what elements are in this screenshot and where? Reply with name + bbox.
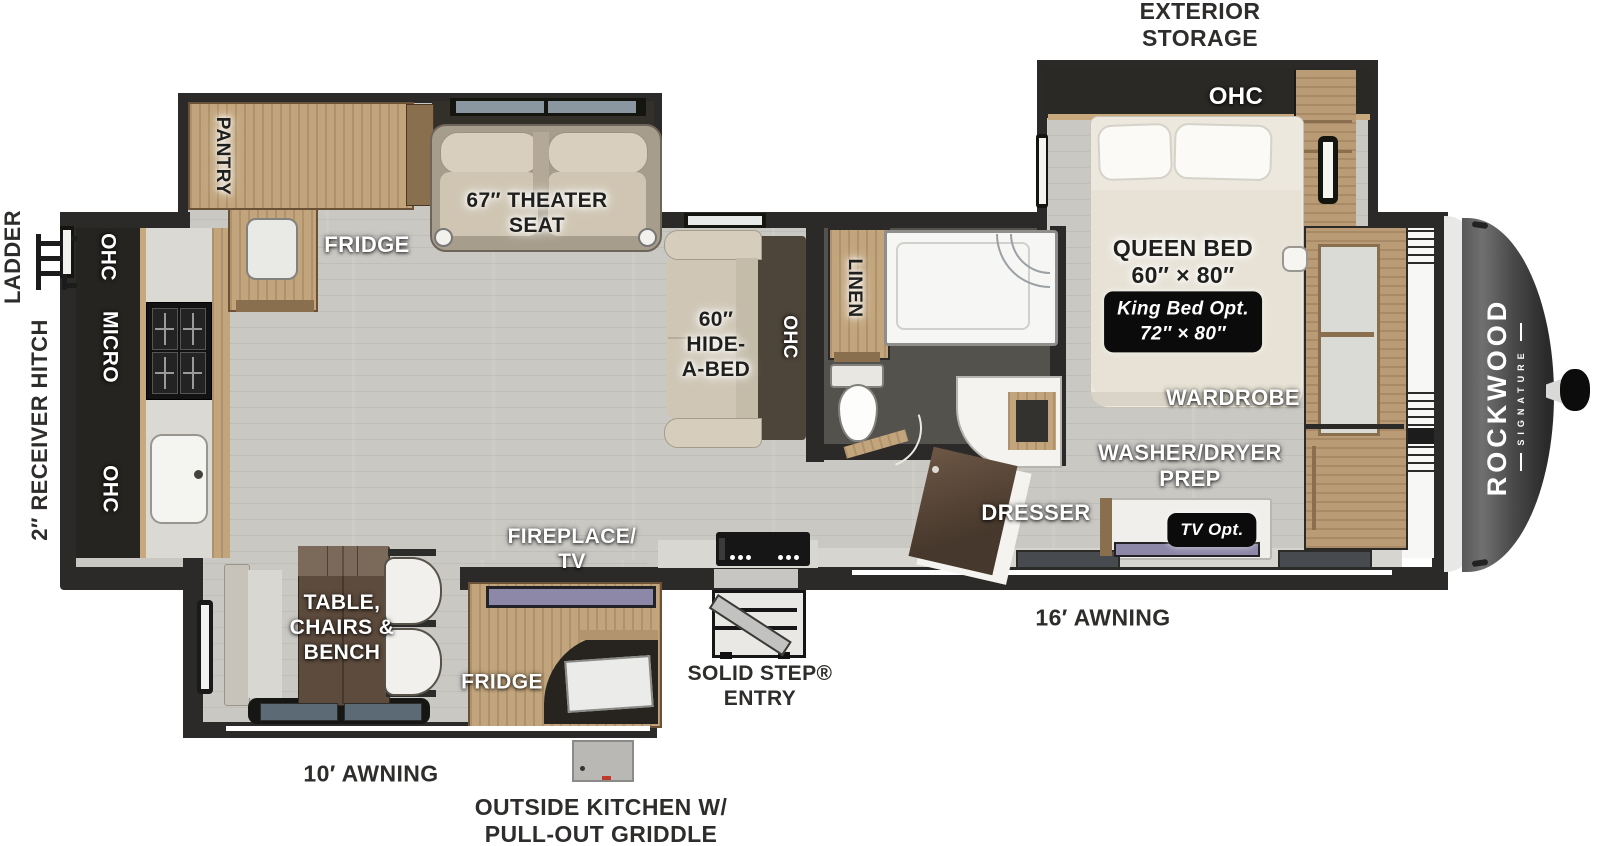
wardrobe-divider xyxy=(1304,424,1404,429)
stove-grate-3 xyxy=(152,352,178,394)
ladder-label: LADDER xyxy=(0,210,26,304)
outside-kitchen-shelf-bar xyxy=(578,630,658,640)
step-foot-1 xyxy=(720,652,732,659)
ohc-kitchen-bottom-label: OHC xyxy=(97,465,122,513)
hitch-icon xyxy=(1560,369,1590,411)
washer-dryer-prep-label: WASHER/DRYER PREP xyxy=(1098,440,1282,492)
rockwood-logo: ROCKWOOD SIGNATURE xyxy=(1464,267,1544,527)
receiver-hitch-label: 2″ RECEIVER HITCH xyxy=(27,319,53,540)
micro-label: MICRO xyxy=(97,311,122,383)
entry-door-threshold xyxy=(714,569,798,588)
brand-sub: SIGNATURE xyxy=(1516,316,1526,477)
vanity-sink xyxy=(1016,400,1048,442)
ohc-bedroom-label: OHC xyxy=(1209,83,1264,111)
griddle-icon xyxy=(716,532,810,566)
pullout-griddle-latch xyxy=(602,776,611,780)
fridge-main-label: FRIDGE xyxy=(324,232,410,258)
griddle-handle xyxy=(719,538,725,560)
corner-cabinet-inset xyxy=(246,218,298,280)
linen-shelf xyxy=(834,352,880,362)
ladder-arm2 xyxy=(65,283,77,288)
awning-16-rail xyxy=(852,570,1392,575)
bench-seat xyxy=(248,570,282,698)
solid-step-entry-label: SOLID STEP® ENTRY xyxy=(688,662,833,712)
bedroom-window-right-glass xyxy=(1323,142,1333,198)
wardrobe-label: WARDROBE xyxy=(1166,385,1300,411)
griddle-dot2 xyxy=(738,555,743,560)
theater-slideout-wall-left xyxy=(178,93,188,232)
nightstand-lamp xyxy=(1282,246,1308,272)
stove-grate-1 xyxy=(152,308,178,350)
corner-cabinet-shelf xyxy=(236,300,314,312)
floor-mat-panel1 xyxy=(260,703,338,721)
griddle-dot4 xyxy=(778,555,783,560)
sofa-window-glass xyxy=(688,216,762,225)
tv-cabinet-wood-end xyxy=(1100,498,1112,556)
bed-pillow-right xyxy=(1173,123,1272,182)
ohc-kitchen-top-label: OHC xyxy=(95,233,120,281)
theater-seat-back1 xyxy=(440,132,540,174)
hide-a-bed-label: 60″ HIDE- A-BED xyxy=(682,308,751,382)
linen-label: LINEN xyxy=(843,259,865,318)
pantry-label: PANTRY xyxy=(211,117,233,195)
theater-seat-label: 67″ THEATER SEAT xyxy=(466,189,607,239)
exterior-storage-label: EXTERIOR STORAGE xyxy=(1140,0,1261,52)
dinette-window-glass xyxy=(201,605,209,689)
rear-window-glass xyxy=(63,230,71,274)
fireplace-tv-screen xyxy=(486,586,656,608)
fridge-outside-label: FRIDGE xyxy=(461,671,543,696)
wardrobe-mirror xyxy=(1318,244,1380,436)
theater-window-pane1 xyxy=(456,101,544,113)
pullout-shelf xyxy=(564,655,653,713)
wardrobe-mirror-bar xyxy=(1320,332,1374,337)
sofa-armrest-bottom xyxy=(664,418,762,448)
theater-seat-back2 xyxy=(548,132,648,174)
bench xyxy=(224,564,250,706)
ohc-sofa-label: OHC xyxy=(778,315,800,358)
dresser-label: DRESSER xyxy=(981,500,1090,526)
theater-cupholder-left xyxy=(434,228,453,247)
queen-bed-label: QUEEN BED 60″ × 80″ xyxy=(1113,235,1253,289)
bedroom-column-shelf1 xyxy=(1296,120,1352,123)
bottom-window-2 xyxy=(1278,550,1372,569)
stove-grate-2 xyxy=(180,308,206,350)
wall-top-rear xyxy=(60,212,190,228)
floor-mat-panel2 xyxy=(344,703,422,721)
griddle-dot1 xyxy=(730,555,735,560)
bedroom-window-left-glass xyxy=(1039,138,1046,204)
brand-name: ROCKWOOD xyxy=(1482,298,1513,496)
table-chairs-bench-label: TABLE, CHAIRS & BENCH xyxy=(290,591,395,665)
awning-16-label: 16′ AWNING xyxy=(1035,604,1170,631)
kitchen-faucet xyxy=(194,470,203,479)
floorplan: ROCKWOOD SIGNATURE EXTERIOR STORAGEOHCQU… xyxy=(0,0,1600,846)
bed-pillow-left xyxy=(1097,123,1173,182)
theater-cupholder-right xyxy=(638,228,657,247)
chair-frame-bar-1 xyxy=(386,549,436,556)
griddle-dot5 xyxy=(786,555,791,560)
tv-opt-label: TV Opt. xyxy=(1167,513,1256,547)
kitchen-sink-icon xyxy=(150,434,208,524)
outside-kitchen-label: OUTSIDE KITCHEN W/ PULL-OUT GRIDDLE xyxy=(475,794,728,846)
griddle-dot3 xyxy=(746,555,751,560)
fireplace-tv-label: FIREPLACE/ TV xyxy=(508,525,637,575)
theater-window-pane2 xyxy=(548,101,636,113)
washer-dryer-cabinet-handle xyxy=(1312,446,1316,530)
wall-bottom-rear xyxy=(72,567,191,590)
griddle-dot6 xyxy=(794,555,799,560)
sofa-armrest-top xyxy=(664,230,762,260)
bath-wall-left xyxy=(806,226,824,462)
awning-10-rail xyxy=(226,726,650,731)
stove-grate-4 xyxy=(180,352,206,394)
awning-10-label: 10′ AWNING xyxy=(303,760,438,787)
king-bed-opt-label: King Bed Opt. 72″ × 80″ xyxy=(1104,291,1262,352)
pullout-griddle-knob xyxy=(580,766,585,771)
